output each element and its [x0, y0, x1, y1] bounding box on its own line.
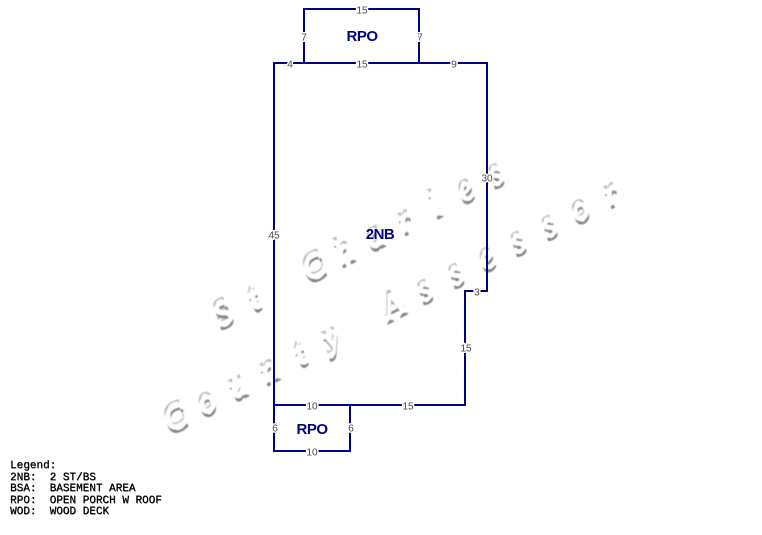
svg-text:6: 6 [348, 424, 354, 435]
svg-text:9: 9 [451, 60, 457, 71]
svg-text:s: s [410, 271, 438, 309]
svg-text:15: 15 [402, 402, 414, 413]
svg-text:7: 7 [417, 33, 423, 44]
svg-text:10: 10 [306, 402, 318, 413]
svg-text:2NB: 2NB [366, 226, 395, 243]
svg-text:45: 45 [268, 231, 280, 242]
svg-text:s: s [441, 255, 469, 293]
svg-text:15: 15 [356, 60, 368, 71]
svg-text:t: t [287, 335, 312, 372]
svg-text:t: t [241, 280, 266, 317]
svg-text:RPO: RPO [296, 421, 328, 438]
svg-text:4: 4 [287, 60, 293, 71]
svg-text:s: s [535, 207, 563, 245]
svg-text:30: 30 [481, 174, 493, 185]
svg-text:6: 6 [272, 424, 278, 435]
svg-text:3: 3 [474, 288, 480, 299]
svg-text:10: 10 [306, 448, 318, 459]
svg-text:RPO: RPO [346, 28, 378, 45]
svg-text:y: y [313, 318, 346, 358]
svg-text:s: s [504, 223, 532, 261]
svg-text:r: r [391, 202, 419, 240]
svg-text:15: 15 [356, 6, 368, 17]
svg-text:7: 7 [301, 33, 307, 44]
svg-text:r: r [597, 174, 625, 212]
svg-text:15: 15 [460, 344, 472, 355]
